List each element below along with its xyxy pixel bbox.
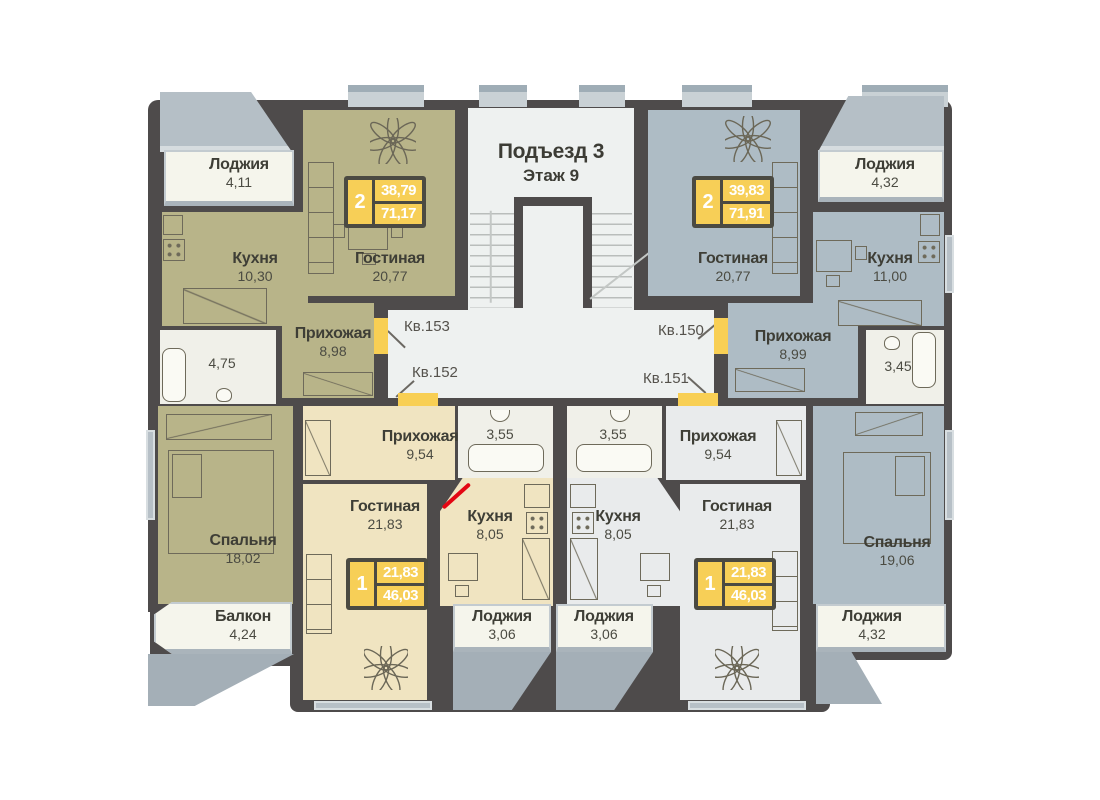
room-label: Гостиная 21,83	[702, 498, 772, 532]
room-label: Гостиная 20,77	[698, 250, 768, 284]
stair-down-line	[490, 211, 492, 303]
stove-icon	[163, 239, 185, 261]
chandelier-flower-icon	[715, 646, 759, 690]
room-label: Лоджия 3,06	[574, 608, 634, 642]
apt-152-area-badge: 1 21,83 46,03	[346, 558, 428, 610]
chandelier-flower-icon	[370, 118, 416, 164]
room-label: Лоджия 4,32	[842, 608, 902, 642]
table-icon	[816, 240, 852, 272]
room-label: Кухня 10,30	[232, 250, 277, 284]
window	[945, 235, 954, 293]
chair-icon	[647, 585, 661, 597]
chair-icon	[855, 246, 867, 260]
room-label: Прихожая 9,54	[382, 428, 459, 462]
room-label: Прихожая 8,99	[755, 328, 832, 362]
room-label: Прихожая 9,54	[680, 428, 757, 462]
toilet-icon	[884, 336, 900, 350]
room-label: Лоджия 4,11	[209, 156, 269, 190]
room-label: Прихожая 8,98	[295, 325, 372, 359]
stair-shaft	[514, 197, 592, 308]
apt-150-area-badge: 2 39,83 71,91	[692, 176, 774, 228]
stove-icon	[526, 512, 548, 534]
window-tab	[579, 85, 625, 107]
apt-153-area-badge: 2 38,79 71,17	[344, 176, 426, 228]
floor-header: Подъезд 3 Этаж 9	[498, 140, 604, 186]
wardrobe-icon	[303, 372, 373, 396]
chair-icon	[333, 224, 345, 238]
apt-150-door-marker	[714, 318, 728, 354]
window	[314, 701, 432, 710]
sofa-icon	[308, 162, 334, 274]
window	[146, 430, 155, 520]
bathtub-icon	[162, 348, 186, 402]
room-area: 4,11	[209, 174, 269, 190]
rooms-count: 2	[348, 180, 372, 224]
wardrobe-icon	[166, 414, 272, 440]
room-label: Гостиная 20,77	[355, 250, 425, 284]
bathtub-icon	[468, 444, 544, 472]
chair-icon	[455, 585, 469, 597]
floor-plan: Подъезд 3 Этаж 9 Лоджия 4,11 Кухня 10,30…	[0, 0, 1100, 800]
room-label: Лоджия 3,06	[472, 608, 532, 642]
room-label: Балкон 4,24	[215, 608, 271, 642]
sofa-icon	[772, 162, 798, 274]
room-label: Спальня 18,02	[209, 532, 276, 566]
wardrobe-icon	[305, 420, 331, 476]
room-label: Лоджия 4,32	[855, 156, 915, 190]
stair-flight-left	[470, 204, 514, 308]
table-icon	[448, 553, 478, 581]
chair-icon	[826, 275, 840, 287]
entrance-title: Подъезд 3	[498, 140, 604, 164]
room-label: Кухня 8,05	[595, 508, 640, 542]
wardrobe-icon	[855, 412, 923, 436]
total-area: 71,17	[375, 204, 422, 225]
table-icon	[640, 553, 670, 581]
fridge-icon	[524, 484, 550, 508]
floor-title: Этаж 9	[498, 166, 604, 186]
kitchen-counter-icon	[522, 538, 550, 600]
stove-icon	[572, 512, 594, 534]
apt-number-label: Кв.153	[404, 318, 450, 335]
living-area: 38,79	[375, 180, 422, 201]
wardrobe-icon	[735, 368, 805, 392]
pillow-icon	[172, 454, 202, 498]
window-tab	[348, 85, 424, 107]
apt-number-label: Кв.151	[643, 370, 689, 387]
apt-153-door-marker	[374, 318, 388, 354]
kitchen-counter-icon	[838, 300, 922, 326]
wardrobe-icon	[776, 420, 802, 476]
fridge-icon	[570, 484, 596, 508]
room-label: Гостиная 21,83	[350, 498, 420, 532]
sofa-icon	[306, 554, 332, 634]
apt-152-door-marker	[398, 393, 438, 406]
apt-number-label: Кв.150	[658, 322, 704, 339]
kitchen-counter-icon	[570, 538, 598, 600]
room-label: 4,75	[208, 355, 235, 371]
room-label: 3,55	[486, 426, 513, 442]
toilet-icon	[216, 388, 232, 402]
window	[688, 701, 806, 710]
kitchen-counter-icon	[183, 288, 267, 324]
apt-151-door-marker	[678, 393, 718, 406]
window	[945, 430, 954, 520]
window-tab	[682, 85, 752, 107]
apt-number-label: Кв.152	[412, 364, 458, 381]
room-label: Кухня 8,05	[467, 508, 512, 542]
bathtub-icon	[576, 444, 652, 472]
fridge-icon	[920, 214, 940, 236]
stove-icon	[918, 241, 940, 263]
room-label: Спальня 19,06	[863, 534, 930, 568]
room-name: Лоджия	[209, 156, 269, 174]
fridge-icon	[163, 215, 183, 235]
chandelier-flower-icon	[364, 646, 408, 690]
room-label: Кухня 11,00	[867, 250, 912, 284]
room-label: 3,45	[884, 358, 911, 374]
balcony-shadow	[148, 654, 294, 706]
apt-151-area-badge: 1 21,83 46,03	[694, 558, 776, 610]
chandelier-flower-icon	[725, 116, 771, 162]
room-label: 3,55	[599, 426, 626, 442]
pillow-icon	[895, 456, 925, 496]
window-tab	[479, 85, 527, 107]
bathtub-icon	[912, 332, 936, 388]
